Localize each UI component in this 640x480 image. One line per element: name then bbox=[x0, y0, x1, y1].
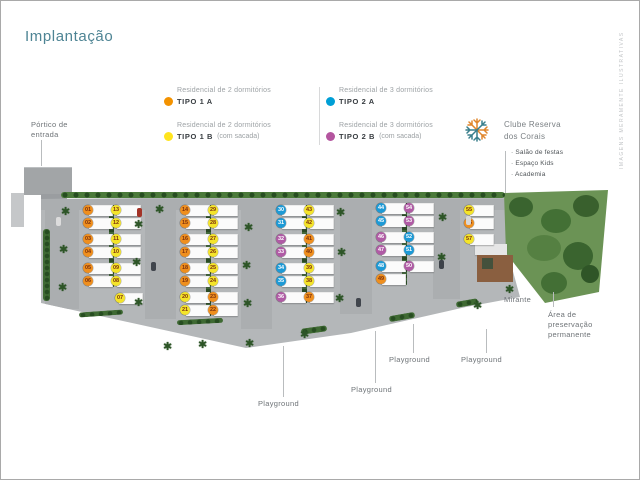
legend-type-label: TIPO 2 A bbox=[339, 97, 375, 106]
parked-car bbox=[466, 216, 471, 225]
site-plan-page: Implantação Residencial de 2 dormitórios… bbox=[0, 0, 640, 480]
unit-marker-37: 37 bbox=[304, 292, 314, 302]
legend-item-tipo1b: Residencial de 2 dormitórios TIPO 1 B (c… bbox=[164, 122, 314, 141]
unit-marker-20: 20 bbox=[180, 292, 190, 302]
legend-type-label: TIPO 2 B bbox=[339, 132, 375, 141]
legend-description: Residencial de 2 dormitórios bbox=[177, 87, 314, 94]
legend-color-dot bbox=[164, 132, 173, 141]
unit-marker-34: 34 bbox=[276, 263, 286, 273]
playground-leader-line bbox=[375, 331, 376, 383]
page-title: Implantação bbox=[25, 28, 113, 45]
portico-leader-line bbox=[41, 140, 42, 166]
palm-tree-icon: ✱ bbox=[438, 213, 447, 224]
utility-block bbox=[11, 193, 24, 227]
unit-marker-03: 03 bbox=[83, 234, 93, 244]
club-leader-line bbox=[505, 151, 506, 193]
playground-label: Playground bbox=[389, 355, 430, 365]
road bbox=[145, 199, 176, 319]
unit-marker-17: 17 bbox=[180, 247, 190, 257]
palm-tree-icon: ✱ bbox=[337, 248, 346, 259]
unit-marker-02: 02 bbox=[83, 218, 93, 228]
parked-car bbox=[137, 208, 142, 217]
unit-marker-16: 16 bbox=[180, 234, 190, 244]
unit-marker-08: 08 bbox=[111, 276, 121, 286]
unit-marker-21: 21 bbox=[180, 305, 190, 315]
unit-marker-52: 52 bbox=[404, 232, 414, 242]
unit-marker-33: 33 bbox=[276, 247, 286, 257]
unit-marker-32: 32 bbox=[276, 234, 286, 244]
club-amenity: Academia bbox=[511, 169, 563, 180]
portico-label: Pórtico de entrada bbox=[31, 120, 68, 140]
club-amenities-list: Salão de festas Espaço Kids Academia bbox=[511, 147, 563, 180]
unit-marker-19: 19 bbox=[180, 276, 190, 286]
playground-label: Playground bbox=[258, 399, 299, 409]
palm-tree-icon: ✱ bbox=[198, 340, 207, 351]
unit-marker-51: 51 bbox=[404, 245, 414, 255]
palm-tree-icon: ✱ bbox=[505, 285, 514, 296]
unit-marker-55: 55 bbox=[464, 205, 474, 215]
unit-marker-09: 09 bbox=[111, 263, 121, 273]
unit-marker-49: 49 bbox=[376, 274, 386, 284]
palm-tree-icon: ✱ bbox=[59, 245, 68, 256]
unit-marker-54: 54 bbox=[404, 203, 414, 213]
palm-tree-icon: ✱ bbox=[132, 258, 141, 269]
entrance-portico-building bbox=[24, 167, 72, 195]
parked-car bbox=[151, 262, 156, 271]
palm-tree-icon: ✱ bbox=[134, 298, 143, 309]
unit-marker-04: 04 bbox=[83, 247, 93, 257]
legend-type-suffix: (com sacada) bbox=[379, 133, 421, 140]
palm-tree-icon: ✱ bbox=[61, 207, 70, 218]
unit-marker-57: 57 bbox=[464, 234, 474, 244]
unit-marker-25: 25 bbox=[208, 263, 218, 273]
legend-type-label: TIPO 1 B bbox=[177, 132, 213, 141]
club-amenity: Espaço Kids bbox=[511, 158, 563, 169]
legend-divider bbox=[319, 87, 320, 145]
unit-marker-46: 46 bbox=[376, 232, 386, 242]
unit-marker-18: 18 bbox=[180, 263, 190, 273]
unit-marker-40: 40 bbox=[304, 247, 314, 257]
unit-marker-35: 35 bbox=[276, 276, 286, 286]
coral-icon bbox=[461, 114, 493, 146]
unit-marker-13: 13 bbox=[111, 205, 121, 215]
legend-color-dot bbox=[326, 132, 335, 141]
parked-car bbox=[356, 298, 361, 307]
playground-label: Playground bbox=[351, 385, 392, 395]
palm-tree-icon: ✱ bbox=[300, 330, 309, 341]
legend-item-tipo2a: Residencial de 3 dormitórios TIPO 2 A bbox=[326, 87, 476, 106]
club-amenity: Salão de festas bbox=[511, 147, 563, 158]
unit-marker-44: 44 bbox=[376, 203, 386, 213]
unit-marker-53: 53 bbox=[404, 216, 414, 226]
playground-label: Playground bbox=[461, 355, 502, 365]
unit-marker-50: 50 bbox=[404, 261, 414, 271]
legend-item-tipo1a: Residencial de 2 dormitórios TIPO 1 A bbox=[164, 87, 314, 106]
unit-marker-41: 41 bbox=[304, 234, 314, 244]
palm-tree-icon: ✱ bbox=[473, 301, 482, 312]
playground-leader-line bbox=[283, 346, 284, 397]
deck-structure bbox=[482, 258, 493, 269]
playground-leader-line bbox=[486, 329, 487, 353]
preservation-leader-line bbox=[553, 292, 554, 307]
unit-marker-43: 43 bbox=[304, 205, 314, 215]
parked-car bbox=[56, 217, 61, 226]
palm-tree-icon: ✱ bbox=[155, 205, 164, 216]
unit-marker-26: 26 bbox=[208, 247, 218, 257]
legend-item-tipo2b: Residencial de 3 dormitórios TIPO 2 B (c… bbox=[326, 122, 476, 141]
legend-type-suffix: (com sacada) bbox=[217, 133, 259, 140]
unit-marker-07: 07 bbox=[115, 293, 125, 303]
unit-marker-48: 48 bbox=[376, 261, 386, 271]
unit-marker-23: 23 bbox=[208, 292, 218, 302]
unit-marker-38: 38 bbox=[304, 276, 314, 286]
unit-marker-05: 05 bbox=[83, 263, 93, 273]
perimeter-hedge bbox=[61, 192, 505, 198]
unit-marker-14: 14 bbox=[180, 205, 190, 215]
disclaimer-note: IMAGENS MERAMENTE ILUSTRATIVAS bbox=[619, 19, 625, 169]
legend-color-dot bbox=[326, 97, 335, 106]
palm-tree-icon: ✱ bbox=[244, 223, 253, 234]
unit-marker-24: 24 bbox=[208, 276, 218, 286]
mirante-label: Mirante bbox=[504, 295, 531, 305]
parked-car bbox=[439, 260, 444, 269]
palm-tree-icon: ✱ bbox=[58, 283, 67, 294]
palm-tree-icon: ✱ bbox=[243, 299, 252, 310]
preservation-label: Área de preservação permanente bbox=[548, 310, 593, 339]
playground-leader-line bbox=[413, 324, 414, 353]
unit-marker-12: 12 bbox=[111, 218, 121, 228]
unit-marker-42: 42 bbox=[304, 218, 314, 228]
legend-color-dot bbox=[164, 97, 173, 106]
legend-type-label: TIPO 1 A bbox=[177, 97, 213, 106]
unit-marker-11: 11 bbox=[111, 234, 121, 244]
west-hedge bbox=[43, 229, 50, 301]
palm-tree-icon: ✱ bbox=[245, 339, 254, 350]
unit-marker-30: 30 bbox=[276, 205, 286, 215]
palm-tree-icon: ✱ bbox=[335, 294, 344, 305]
unit-marker-31: 31 bbox=[276, 218, 286, 228]
clubhouse-building bbox=[475, 244, 507, 255]
unit-marker-15: 15 bbox=[180, 218, 190, 228]
unit-marker-01: 01 bbox=[83, 205, 93, 215]
unit-marker-45: 45 bbox=[376, 216, 386, 226]
unit-marker-36: 36 bbox=[276, 292, 286, 302]
palm-tree-icon: ✱ bbox=[134, 220, 143, 231]
unit-marker-22: 22 bbox=[208, 305, 218, 315]
legend-description: Residencial de 3 dormitórios bbox=[339, 122, 476, 129]
unit-marker-39: 39 bbox=[304, 263, 314, 273]
club-name: Clube Reserva dos Corais bbox=[504, 119, 561, 142]
unit-marker-10: 10 bbox=[111, 247, 121, 257]
palm-tree-icon: ✱ bbox=[242, 261, 251, 272]
unit-marker-28: 28 bbox=[208, 218, 218, 228]
unit-marker-29: 29 bbox=[208, 205, 218, 215]
palm-tree-icon: ✱ bbox=[163, 342, 172, 353]
unit-marker-27: 27 bbox=[208, 234, 218, 244]
legend-description: Residencial de 3 dormitórios bbox=[339, 87, 476, 94]
legend-description: Residencial de 2 dormitórios bbox=[177, 122, 314, 129]
unit-marker-47: 47 bbox=[376, 245, 386, 255]
palm-tree-icon: ✱ bbox=[336, 208, 345, 219]
unit-marker-06: 06 bbox=[83, 276, 93, 286]
